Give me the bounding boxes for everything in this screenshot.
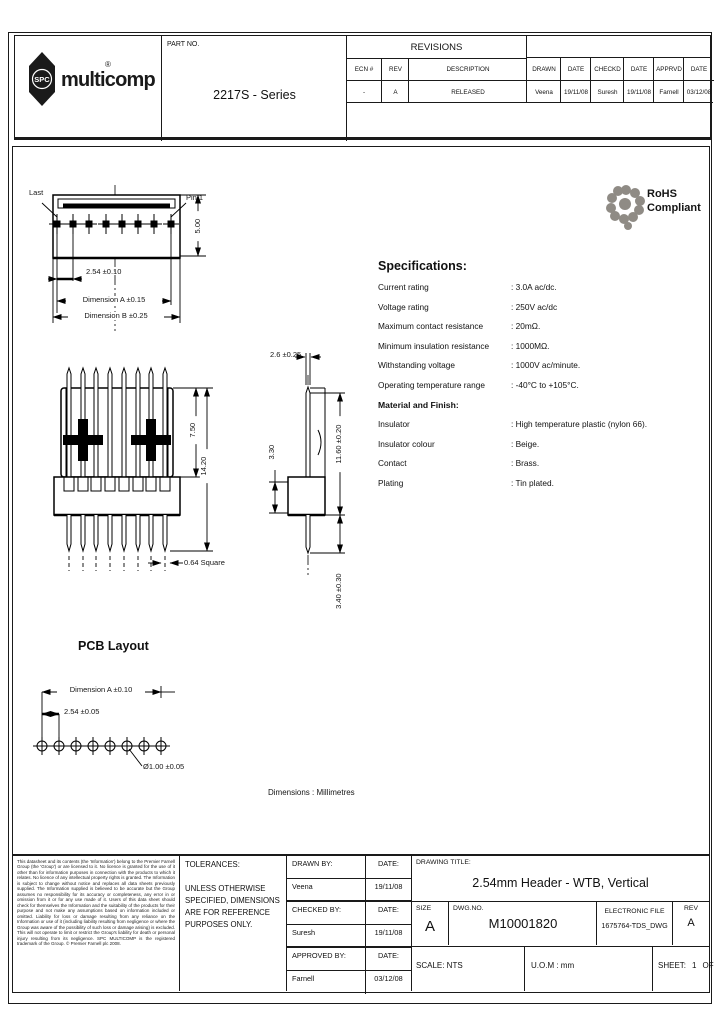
scale-cell: SCALE: NTS	[416, 961, 463, 970]
footer-block: This datasheet and its contents (the 'In…	[12, 855, 710, 993]
rev-cell: REV A	[672, 902, 709, 945]
pcb-layout-drawing	[30, 678, 230, 793]
spec-row: Voltage rating: 250V ac/dc	[378, 302, 700, 322]
spec-row: Plating: Tin plated.	[378, 478, 700, 498]
rev-cell-apprvd: Farnell	[653, 80, 684, 103]
side-view-drawing	[255, 345, 385, 645]
rev-cell-desc: RELEASED	[408, 80, 527, 103]
rev-col-desc: DESCRIPTION	[408, 58, 527, 80]
tolerances-body: UNLESS OTHERWISE SPECIFIED, DIMENSIONS A…	[185, 883, 281, 931]
brand-name: multicomp	[61, 69, 155, 92]
uom-value: U.O.M : mm	[531, 961, 652, 970]
rev-col-date1: DATE	[560, 58, 591, 80]
top-view-dim-a: Dimension A ±0.15	[66, 296, 162, 304]
tolerances-title: TOLERANCES:	[185, 860, 281, 869]
brand-logo: SPC multicomp ®	[15, 36, 161, 141]
rev-cell-checkd: Suresh	[590, 80, 624, 103]
drawing-title: 2.54mm Header - WTB, Vertical	[412, 876, 709, 890]
rev-col-checkd: CHECKD	[590, 58, 624, 80]
rev-col-ecn: ECN #	[347, 58, 381, 80]
rev-cell-rev: A	[381, 80, 409, 103]
drawing-title-label: DRAWING TITLE:	[416, 859, 471, 866]
efile-cell: ELECTRONIC FILE 1675764-TDS_DWG	[596, 902, 672, 945]
drawing-title-row: DRAWING TITLE: 2.54mm Header - WTB, Vert…	[412, 856, 709, 902]
registered-mark-icon: ®	[105, 60, 111, 69]
spec-row: Maximum contact resistance: 20mΩ.	[378, 321, 700, 341]
dwg-no-cell: DWG.NO. M10001820	[448, 902, 596, 945]
sheet-label: SHEET:	[658, 961, 686, 991]
rohs-label-line1: RoHS	[647, 188, 677, 200]
size-cell: SIZE A	[412, 902, 448, 945]
specifications-block: Current rating: 3.0A ac/dc. Voltage rati…	[378, 282, 700, 498]
signoff-row: APPROVED BY:DATE:	[287, 948, 411, 971]
efile-label: ELECTRONIC FILE	[597, 908, 672, 915]
spec-row: Minimum insulation resistance: 1000MΩ.	[378, 341, 700, 361]
dwg-no-value: M10001820	[449, 916, 597, 931]
pcb-dim-a: Dimension A ±0.10	[57, 686, 145, 694]
rev-label: REV	[673, 905, 709, 912]
rohs-label-line2: Compliant	[647, 202, 701, 214]
efile-value: 1675764-TDS_DWG	[597, 921, 672, 930]
rev-empty-row	[347, 102, 713, 141]
disclaimer: This datasheet and its contents (the 'In…	[13, 856, 179, 991]
rohs-flower-icon	[604, 180, 648, 232]
signoff-row: Farnell03/12/08	[287, 971, 411, 994]
spec-row: Contact: Brass.	[378, 458, 700, 478]
rev-col-date2: DATE	[623, 58, 654, 80]
rev-cell-ecn: -	[347, 80, 381, 103]
part-no-cell: PART NO. 2217S - Series	[161, 36, 346, 141]
side-view-below-dim: 3.40 ±0.30	[335, 565, 343, 617]
side-view-upper-dim: 11.60 ±0.20	[335, 416, 343, 472]
rev-col-drawn: DRAWN	[526, 58, 561, 80]
top-view-height-dim: 5.00	[194, 211, 202, 241]
rev-col-date3: DATE	[683, 58, 714, 80]
header-table: SPC multicomp ® PART NO. 2217S - Series …	[14, 35, 711, 140]
top-view-last-label: Last	[29, 189, 43, 197]
signoff-row: CHECKED BY:DATE:	[287, 902, 411, 925]
part-no-value: 2217S - Series	[162, 88, 347, 102]
spec-row: Insulator: High temperature plastic (nyl…	[378, 419, 700, 439]
datasheet-page: SPC multicomp ® PART NO. 2217S - Series …	[0, 0, 720, 1012]
front-view-drawing	[50, 358, 215, 588]
front-view-upper-dim: 7.50	[189, 416, 197, 444]
rev-value: A	[673, 917, 709, 929]
spec-material-title: Material and Finish:	[378, 400, 700, 420]
pcb-hole-dim: Ø1.00 ±0.05	[143, 763, 184, 771]
disclaimer-text: This datasheet and its contents (the 'In…	[17, 859, 175, 947]
spec-row: Withstanding voltage: 1000V ac/minute.	[378, 360, 700, 380]
part-no-label: PART NO.	[167, 41, 199, 48]
size-value: A	[412, 918, 448, 935]
pcb-pitch-dim: 2.54 ±0.05	[64, 708, 99, 716]
spc-diamond-icon: SPC	[27, 52, 57, 106]
signoff-row: Veena19/11/08	[287, 879, 411, 902]
sheet-cell: SHEET: 1 OF 2	[652, 947, 709, 991]
top-view-pitch-dim: 2.54 ±0.10	[86, 268, 121, 276]
rev-col-rev: REV	[381, 58, 409, 80]
units-note: Dimensions : Millimetres	[268, 789, 355, 798]
signoff-row: DRAWN BY:DATE:	[287, 856, 411, 879]
sheet-no: 1	[692, 961, 696, 991]
front-view-pin-square-dim: 0.64 Square	[184, 559, 225, 567]
top-view-dim-b: Dimension B ±0.25	[68, 312, 164, 320]
revisions-title: REVISIONS	[347, 36, 526, 59]
top-view-pin1-label: Pin 1	[186, 194, 203, 202]
signoff-table: DRAWN BY:DATE: Veena19/11/08 CHECKED BY:…	[286, 856, 411, 991]
rev-col-apprvd: APPRVD	[653, 58, 684, 80]
spec-row: Operating temperature range: -40°C to +1…	[378, 380, 700, 400]
dwg-no-label: DWG.NO.	[453, 905, 484, 912]
spec-row: Current rating: 3.0A ac/dc.	[378, 282, 700, 302]
spec-title: Specifications:	[378, 259, 467, 273]
spc-badge-text: SPC	[34, 75, 50, 84]
title-block: DRAWING TITLE: 2.54mm Header - WTB, Vert…	[411, 856, 708, 991]
side-view-body-dim: 3.30	[268, 439, 276, 465]
scale-row: SCALE: NTS U.O.M : mm SHEET: 1 OF 2	[412, 947, 709, 991]
pcb-layout-title: PCB Layout	[78, 639, 149, 653]
spec-row: Insulator colour: Beige.	[378, 439, 700, 459]
front-view-total-dim: 14.20	[200, 449, 208, 483]
sheet-of: OF	[702, 961, 713, 991]
side-view-tail-dim: 2.6 ±0.25	[270, 351, 301, 359]
rev-cell-drawn: Veena	[526, 80, 561, 103]
revisions-title-spacer	[526, 36, 712, 58]
dwg-info-row: SIZE A DWG.NO. M10001820 ELECTRONIC FILE…	[412, 902, 709, 947]
rev-cell-date1: 19/11/08	[560, 80, 591, 103]
rev-cell-date3: 03/12/08	[683, 80, 714, 103]
size-label: SIZE	[416, 905, 431, 912]
tolerances-cell: TOLERANCES: UNLESS OTHERWISE SPECIFIED, …	[179, 856, 286, 991]
rev-cell-date2: 19/11/08	[623, 80, 654, 103]
revisions-table: REVISIONS ECN # REV DESCRIPTION DRAWN DA…	[346, 36, 712, 141]
signoff-row: Suresh19/11/08	[287, 925, 411, 948]
uom-cell: U.O.M : mm	[524, 947, 652, 991]
